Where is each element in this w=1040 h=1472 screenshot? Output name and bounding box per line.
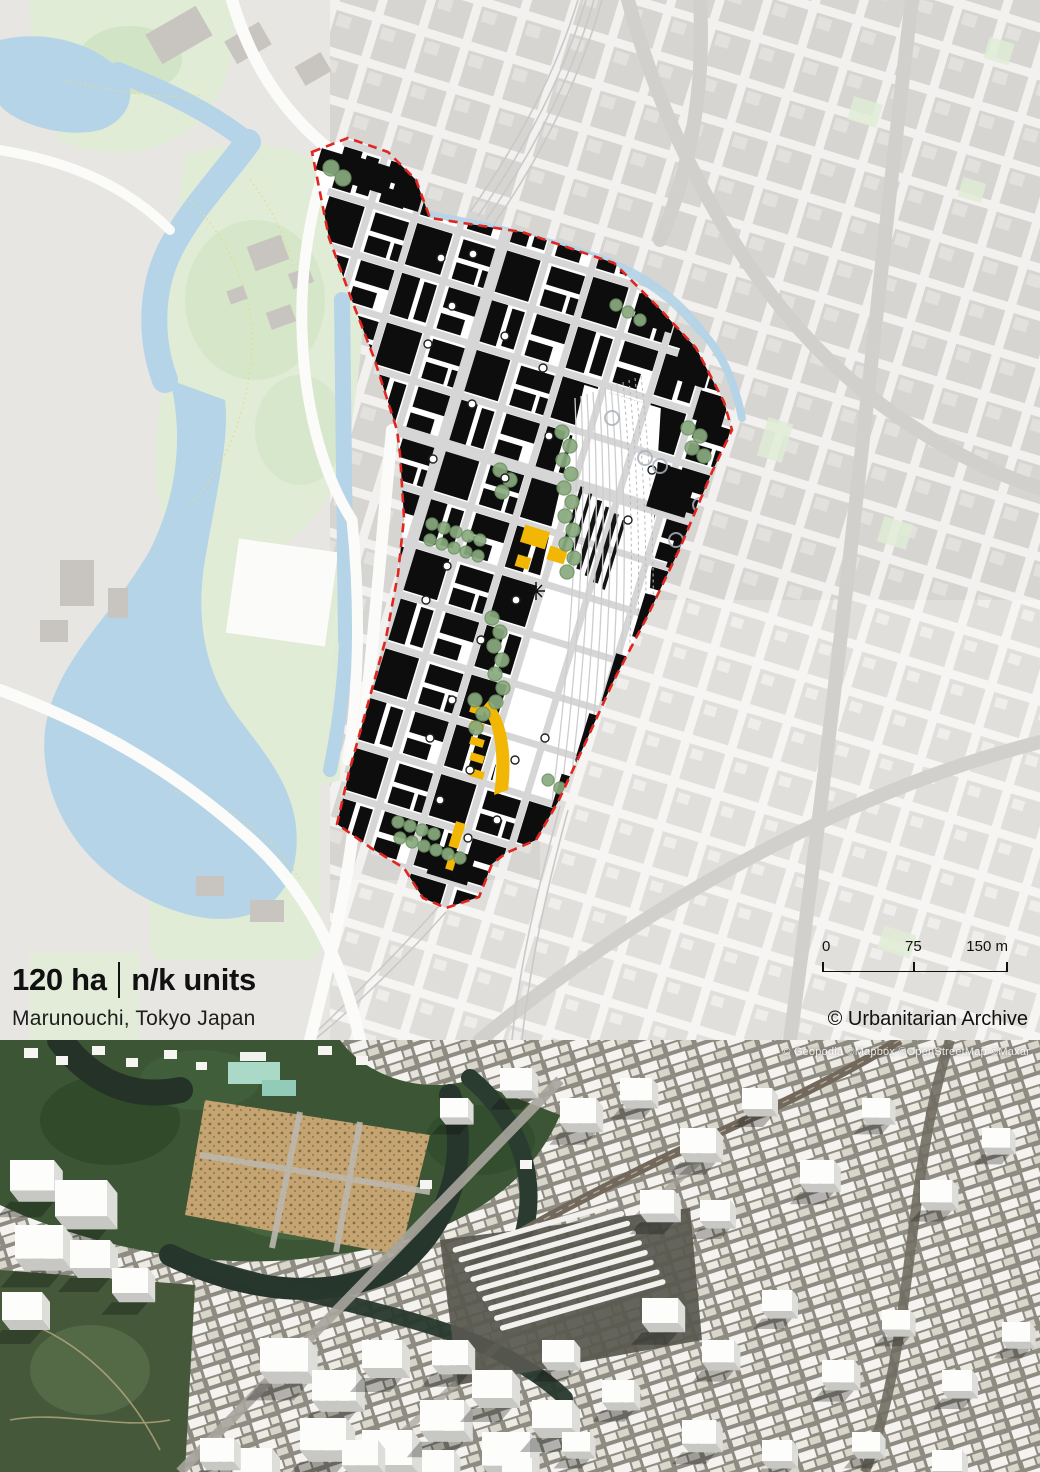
map-attribution: © Urbanitarian Archive <box>828 1008 1028 1031</box>
figure-ground-map-panel: 120 ha n/k units Marunouchi, Tokyo Japan… <box>0 0 1040 1040</box>
scale-tick <box>913 962 915 971</box>
location-label: Marunouchi, Tokyo Japan <box>12 1007 256 1031</box>
scale-bar-line <box>822 962 1008 972</box>
district-stats: 120 ha n/k units <box>12 962 256 998</box>
map-sheet: 120 ha n/k units Marunouchi, Tokyo Japan… <box>0 0 1040 1472</box>
satellite-3d-panel: © Geopodia ©Mapbox ©OpenStreetMap ©Maxar <box>0 1040 1040 1472</box>
scale-tick <box>1006 962 1008 971</box>
map-canvas[interactable] <box>0 0 1040 1040</box>
satellite-attribution: © Geopodia ©Mapbox ©OpenStreetMap ©Maxar <box>782 1046 1030 1058</box>
area-value: 120 ha <box>12 962 107 998</box>
scale-label-zero: 0 <box>822 938 830 955</box>
stats-divider <box>118 962 121 998</box>
units-value: n/k units <box>131 962 256 998</box>
map-caption: 120 ha n/k units Marunouchi, Tokyo Japan <box>12 962 256 1031</box>
satellite-haze <box>0 1040 1040 1472</box>
scale-label-end: 150 m <box>966 938 1008 955</box>
satellite-canvas[interactable] <box>0 1040 1040 1472</box>
scale-tick <box>822 962 824 971</box>
scale-bar-labels: 0 75 150 m <box>822 938 1008 958</box>
scale-bar: 0 75 150 m <box>822 938 1008 972</box>
scale-label-mid: 75 <box>905 938 922 955</box>
